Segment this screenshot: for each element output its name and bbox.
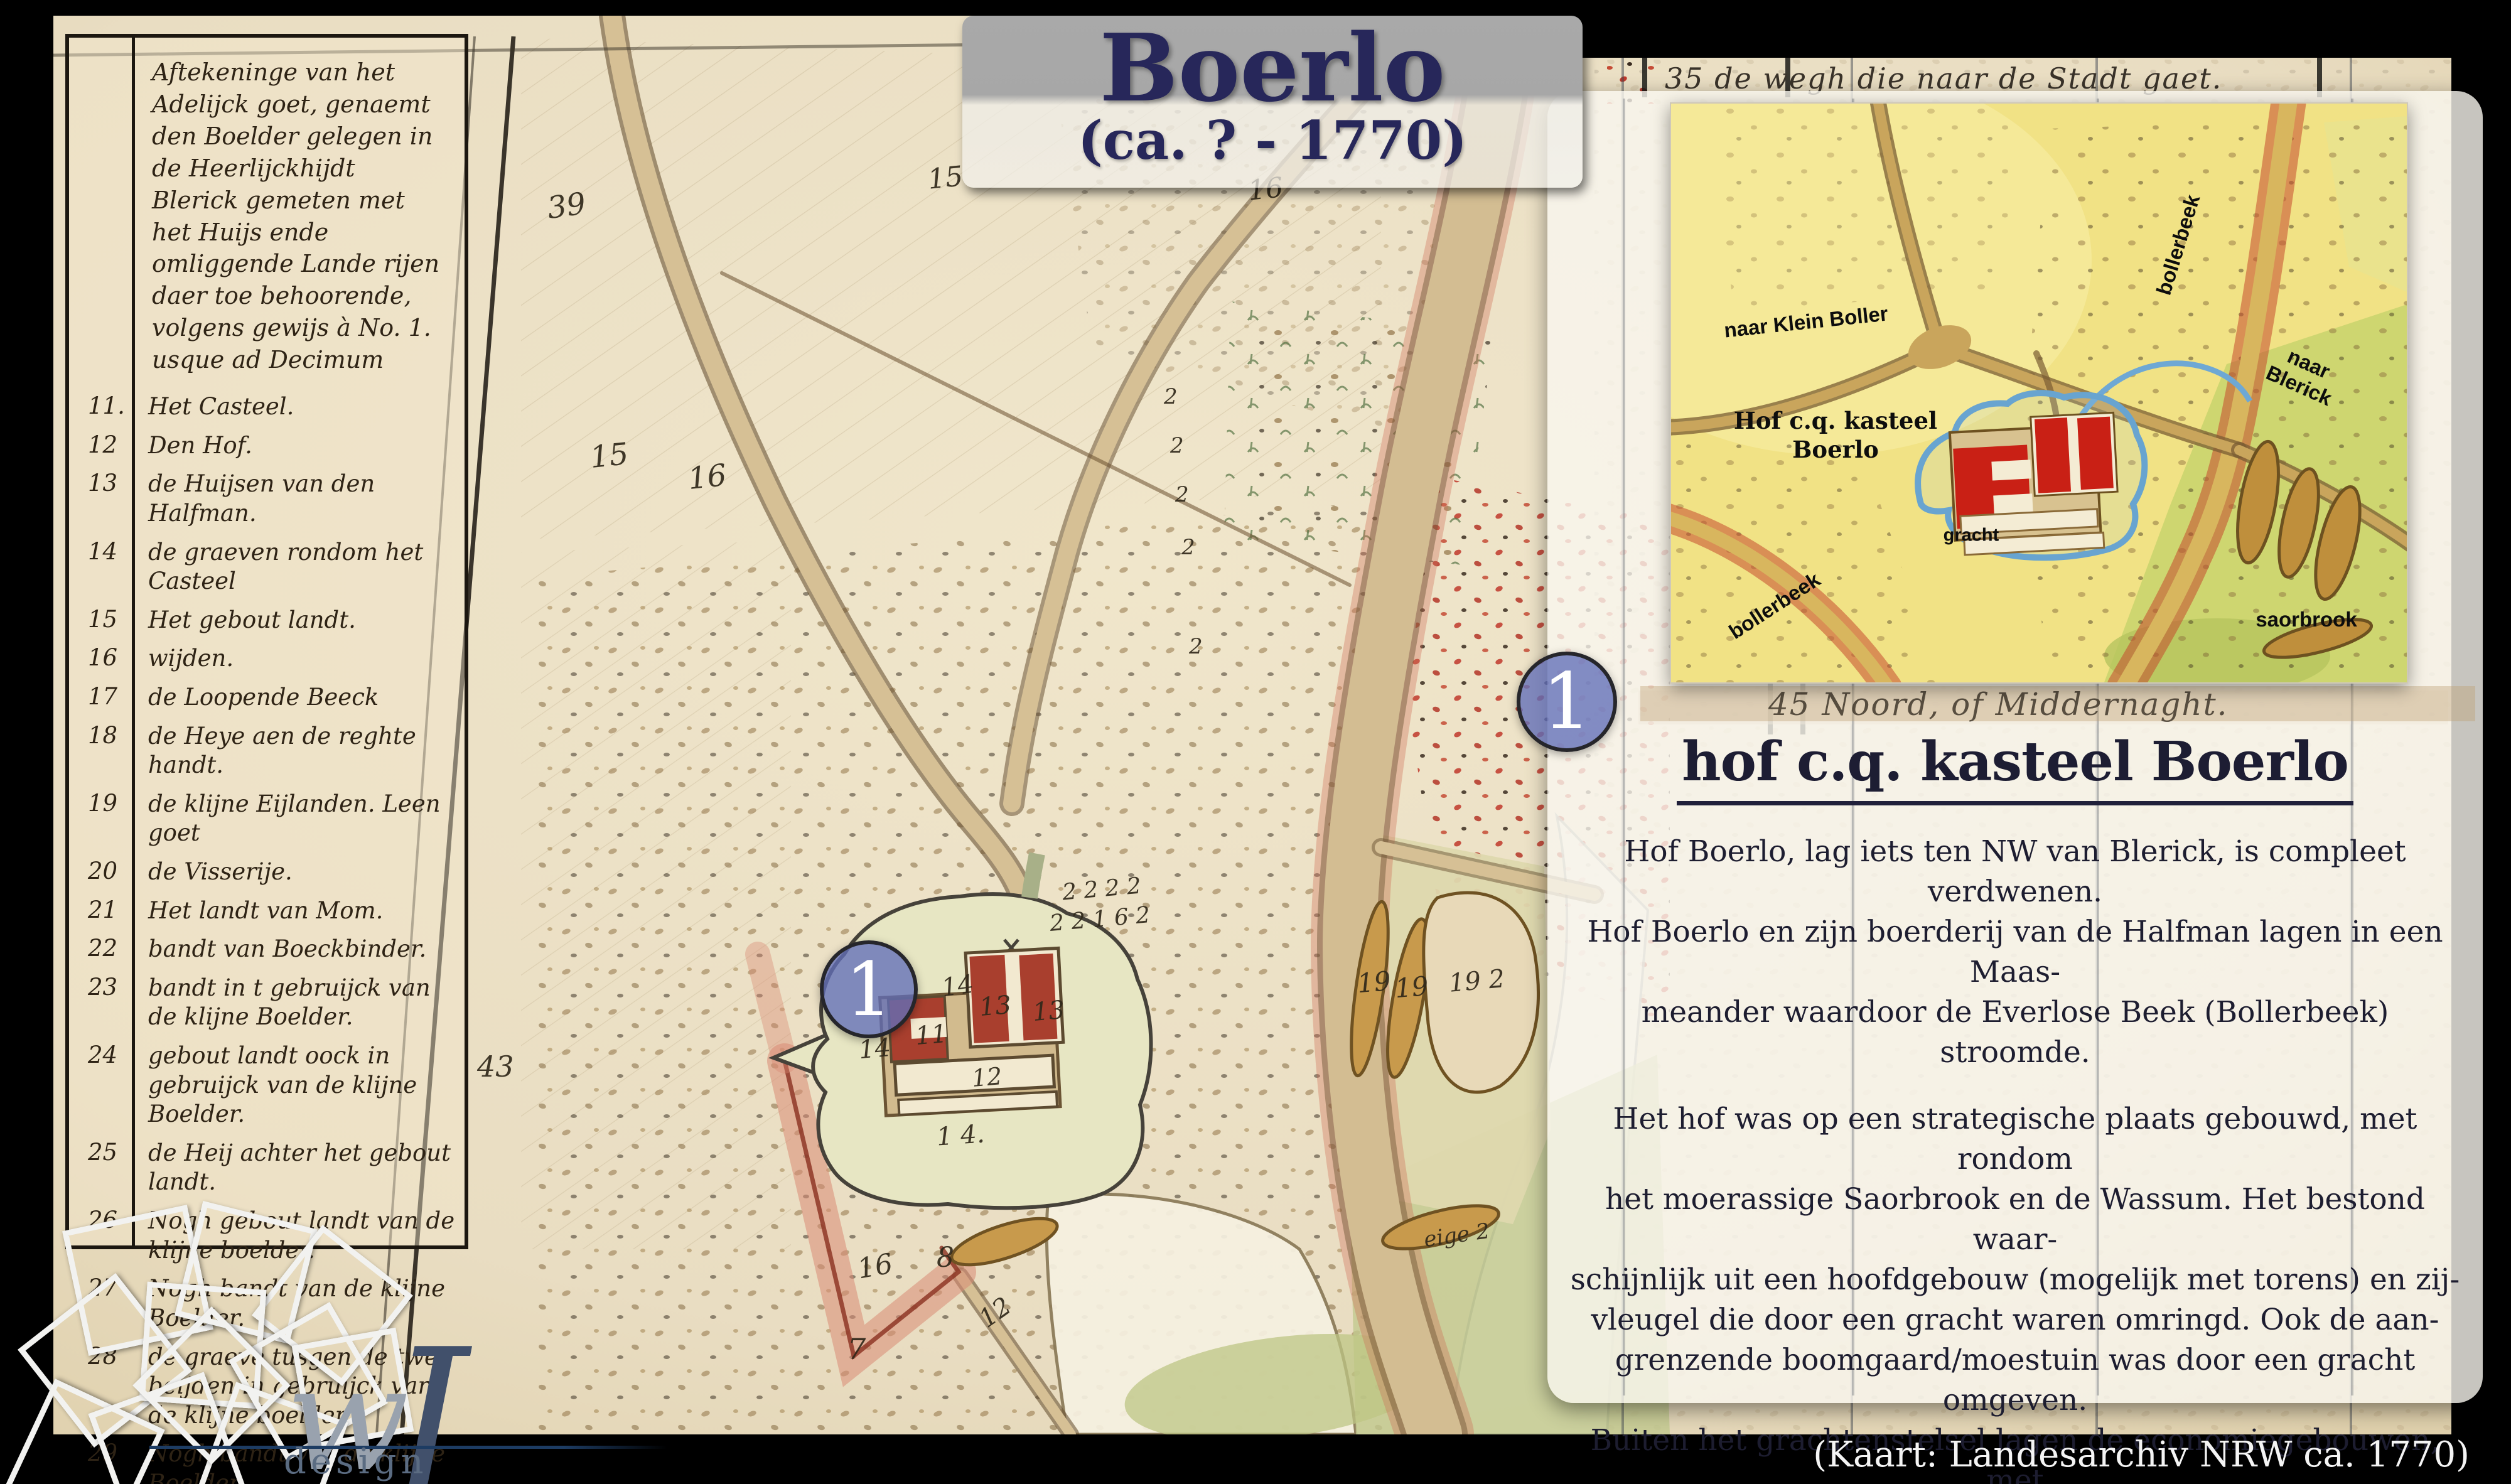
inset-label: saorbrook bbox=[2256, 608, 2357, 632]
marker-1-map-label: 1 bbox=[845, 946, 892, 1033]
legend-item-number: 15 bbox=[69, 606, 132, 635]
legend-item-number: 22 bbox=[69, 935, 132, 964]
logo-subtitle: design bbox=[284, 1441, 428, 1482]
legend-item-text: Den Hof. bbox=[132, 431, 456, 461]
legend-item-text: bandt in t gebruijck van de klijne Boeld… bbox=[132, 974, 456, 1032]
page-title: Boerlo bbox=[962, 19, 1583, 117]
legend-item-number: 24 bbox=[69, 1041, 132, 1129]
legend-item-number: 17 bbox=[69, 683, 132, 712]
legend-item: 14 de graeven rondom het Casteel bbox=[69, 538, 456, 596]
panel-heading: hof c.q. kasteel Boerlo bbox=[1677, 730, 2353, 805]
legend-item: 16 wijden. bbox=[69, 644, 456, 674]
legend-item-text: wijden. bbox=[132, 644, 456, 674]
legend-item: 13 de Huijsen van den Halfman. bbox=[69, 470, 456, 528]
panel-text: hof c.q. kasteel Boerlo Hof Boerlo, lag … bbox=[1570, 730, 2460, 1484]
legend-item-number: 19 bbox=[69, 790, 132, 848]
map-number: 12 bbox=[971, 1062, 1003, 1092]
legend-item-text: de graeven rondom het Casteel bbox=[132, 538, 456, 596]
marker-1-panel-label: 1 bbox=[1542, 657, 1592, 747]
legend-header: Aftekeninge van het Adelijck goet, genae… bbox=[69, 38, 465, 382]
legend-item-text: de Heye aen de reghte handt. bbox=[132, 722, 456, 780]
legend-item: 18 de Heye aen de reghte handt. bbox=[69, 722, 456, 780]
map-number: 16 bbox=[855, 1248, 895, 1286]
legend-item-number: 21 bbox=[69, 896, 132, 926]
map-number: 39 bbox=[545, 186, 588, 226]
map-number: 2 bbox=[1175, 482, 1189, 507]
legend-item-number: 23 bbox=[69, 974, 132, 1032]
legend-item-text: de Huijsen van den Halfman. bbox=[132, 470, 456, 528]
legend-item-text: Het Casteel. bbox=[132, 392, 456, 422]
map-number: 2 bbox=[1189, 634, 1203, 659]
legend-item-text: de Heij achter het gebout landt. bbox=[132, 1139, 456, 1197]
map-number: 11 bbox=[914, 1019, 949, 1051]
legend-item: 15 Het gebout landt. bbox=[69, 606, 456, 635]
legend-item: 20 de Visserije. bbox=[69, 858, 456, 887]
map-number: 43 bbox=[477, 1050, 514, 1083]
title-banner: Boerlo (ca. ? - 1770) bbox=[962, 16, 1583, 188]
legend-item: 25 de Heij achter het gebout landt. bbox=[69, 1139, 456, 1197]
map-number: 19 2 bbox=[1448, 964, 1506, 998]
legend-item: 22 bandt van Boeckbinder. bbox=[69, 935, 456, 964]
legend-item-number: 14 bbox=[69, 538, 132, 596]
map-number: 2 bbox=[1170, 433, 1184, 458]
legend-item-text: de klijne Eijlanden. Leen goet bbox=[132, 790, 456, 848]
inset-label: gracht bbox=[1944, 525, 1999, 546]
legend-item-text: Het landt van Mom. bbox=[132, 896, 456, 926]
legend-item-text: gebout landt oock in gebruijck van de kl… bbox=[132, 1041, 456, 1129]
legend-item-number: 25 bbox=[69, 1139, 132, 1197]
legend-item-number: 20 bbox=[69, 858, 132, 887]
legend-item-number: 16 bbox=[69, 644, 132, 674]
legend-item: 24 gebout landt oock in gebruijck van de… bbox=[69, 1041, 456, 1129]
legend-item-text: de Visserije. bbox=[132, 858, 456, 887]
map-number: 13 bbox=[1031, 996, 1066, 1027]
panel-paragraph-2: Het hof was op een strategische plaats g… bbox=[1570, 1099, 2460, 1484]
map-number: 14 bbox=[940, 970, 976, 1003]
legend-item: 11. Het Casteel. bbox=[69, 392, 456, 422]
map-number: 2 bbox=[1164, 384, 1178, 409]
map-note-road-to-town: 35 de wegh die naar de Stadt gaet. bbox=[1665, 62, 2222, 95]
map-number: 13 bbox=[978, 991, 1013, 1022]
map-number: 16 bbox=[686, 458, 728, 497]
legend-item: 12 Den Hof. bbox=[69, 431, 456, 461]
map-number: 19 bbox=[1356, 965, 1392, 999]
legend-item-text: Het gebout landt. bbox=[132, 606, 456, 635]
map-number: 15 bbox=[588, 436, 630, 475]
inset-detail-map: naar Klein Bollerbollerbeeknaar BlerickH… bbox=[1670, 102, 2408, 684]
map-number: 19 bbox=[1394, 971, 1430, 1004]
legend-item-number: 11. bbox=[69, 392, 132, 422]
legend-table: Aftekeninge van het Adelijck goet, genae… bbox=[65, 34, 468, 1249]
marker-1-map-badge: 1 bbox=[820, 940, 918, 1038]
panel-paragraph-1: Hof Boerlo, lag iets ten NW van Blerick,… bbox=[1570, 832, 2460, 1073]
legend-item-text: de Loopende Beeck bbox=[132, 683, 456, 712]
legend-item-number: 13 bbox=[69, 470, 132, 528]
legend-item: 17 de Loopende Beeck bbox=[69, 683, 456, 712]
legend-item: 21 Het landt van Mom. bbox=[69, 896, 456, 926]
map-note-north: 45 Noord, of Middernaght. bbox=[1768, 686, 2229, 723]
source-caption: (Kaart: Landesarchiv NRW ca. 1770) bbox=[1813, 1434, 2470, 1475]
legend-item: 19 de klijne Eijlanden. Leen goet bbox=[69, 790, 456, 848]
legend-item-text: bandt van Boeckbinder. bbox=[132, 935, 456, 964]
map-number: 7 bbox=[847, 1332, 866, 1366]
map-number: 8 bbox=[937, 1242, 954, 1274]
top-right-bar bbox=[1538, 16, 2451, 58]
inset-label: Hof c.q. kasteel Boerlo bbox=[1734, 406, 1937, 465]
legend-item-number: 12 bbox=[69, 431, 132, 461]
map-number: 15 bbox=[926, 160, 964, 196]
page-subtitle: (ca. ? - 1770) bbox=[962, 117, 1583, 164]
map-number: 1 4. bbox=[935, 1119, 985, 1151]
map-number: 2 bbox=[1181, 535, 1195, 560]
slide: Aftekeninge van het Adelijck goet, genae… bbox=[0, 0, 2511, 1484]
legend-item: 23 bandt in t gebruijck van de klijne Bo… bbox=[69, 974, 456, 1032]
legend-item-number: 18 bbox=[69, 722, 132, 780]
marker-1-panel-badge: 1 bbox=[1517, 652, 1617, 752]
